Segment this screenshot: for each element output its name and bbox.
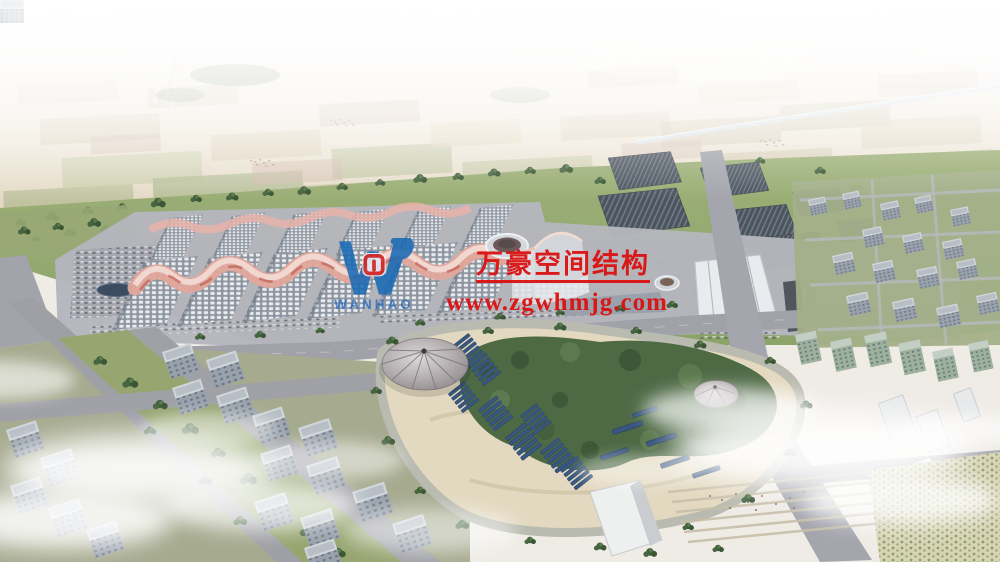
logo-emblem-icon <box>362 253 385 276</box>
watermark-logo-text: WANHAO <box>322 297 426 312</box>
small-dome-hub <box>655 276 679 290</box>
watermark-company-name: 万豪空间结构 <box>476 250 650 283</box>
aerial-architectural-render: WANHAO 万豪空间结构 www.zgwhmjg.com <box>0 0 1000 562</box>
wanhao-w-logo-icon <box>332 238 416 298</box>
large-tent-canopy <box>379 338 471 397</box>
watermark-website-url: www.zgwhmjg.com <box>446 289 668 317</box>
atmospheric-haze <box>0 0 1000 200</box>
